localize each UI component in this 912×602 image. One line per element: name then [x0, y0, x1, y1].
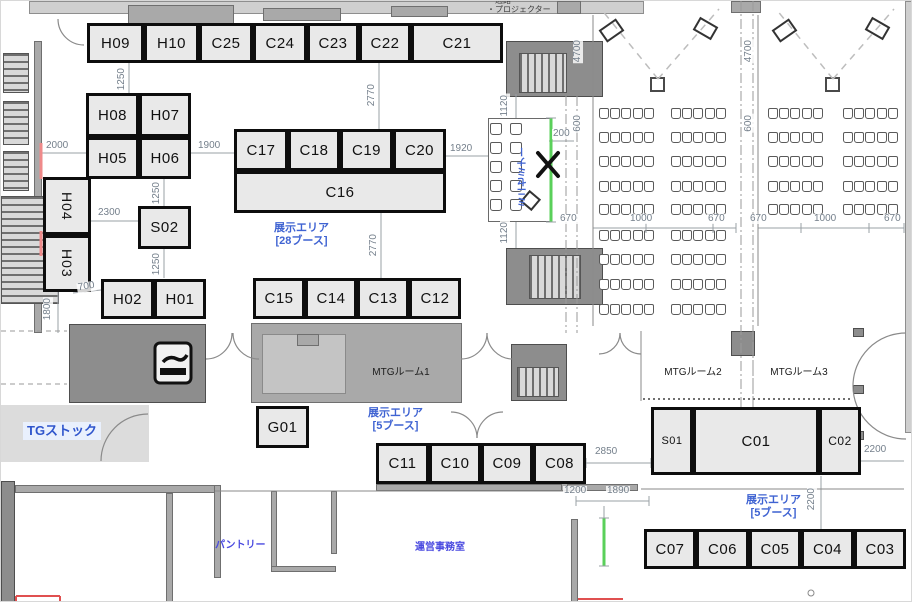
chair-icon	[716, 254, 726, 265]
chair-icon	[716, 304, 726, 315]
area-label: 展示エリア[28ブース]	[259, 222, 344, 248]
chair-icon	[888, 108, 898, 119]
chair-icon	[888, 156, 898, 167]
wall-segment	[905, 1, 912, 433]
chair-icon	[682, 132, 692, 143]
chair-icon	[490, 180, 502, 192]
chair-icon	[599, 279, 609, 290]
dimension-label: 700	[76, 281, 96, 294]
wall-segment	[271, 491, 277, 571]
chair-icon	[705, 156, 715, 167]
chair-icon	[716, 132, 726, 143]
door-arc	[620, 333, 641, 354]
chair-icon	[490, 199, 502, 211]
chair-icon	[682, 230, 692, 241]
booth-h06[interactable]: H06	[139, 137, 191, 179]
chair-icon	[621, 254, 631, 265]
booth-label: H04	[59, 192, 75, 221]
booth-label: H06	[150, 150, 179, 167]
chair-icon	[779, 156, 789, 167]
chair-icon	[610, 181, 620, 192]
chair-icon	[813, 181, 823, 192]
chair-icon	[644, 230, 654, 241]
booth-label: H07	[150, 107, 179, 124]
chair-icon	[802, 108, 812, 119]
room-label: MTGルーム1	[356, 363, 446, 378]
chair-icon	[790, 132, 800, 143]
chair-icon	[802, 132, 812, 143]
chair-icon	[813, 108, 823, 119]
room-label: MTGルーム3	[754, 363, 844, 378]
chair-icon	[779, 181, 789, 192]
booth-c23[interactable]: C23	[307, 23, 359, 63]
booth-c17[interactable]: C17	[234, 129, 288, 171]
dimension-label: 670	[883, 214, 902, 224]
door-arc	[206, 333, 232, 359]
wall-segment	[263, 8, 341, 21]
chair-icon	[705, 304, 715, 315]
chair-icon	[490, 142, 502, 154]
projection-line	[833, 9, 894, 79]
booth-c25[interactable]: C25	[199, 23, 253, 63]
wall-segment	[853, 328, 864, 337]
chair-icon	[877, 132, 887, 143]
chair-icon	[599, 204, 609, 215]
chair-icon	[716, 279, 726, 290]
stairs-icon	[3, 151, 29, 191]
booth-label: C18	[299, 142, 328, 159]
wall-segment	[271, 566, 336, 572]
booth-c11[interactable]: C11	[376, 443, 429, 484]
chair-icon	[693, 132, 703, 143]
area-label: ミニセミナー	[518, 147, 530, 207]
door-arc	[853, 333, 906, 386]
chair-icon	[705, 254, 715, 265]
smoking-area-icon	[153, 341, 193, 390]
booth-label: C04	[813, 541, 842, 558]
booth-c14[interactable]: C14	[305, 278, 357, 319]
chair-icon	[877, 108, 887, 119]
chair-icon	[671, 230, 681, 241]
chair-icon	[633, 230, 643, 241]
chair-icon	[633, 254, 643, 265]
dimension-label: 1120	[500, 221, 510, 245]
chair-icon	[610, 156, 620, 167]
chair-icon	[682, 156, 692, 167]
booth-c06[interactable]: C06	[696, 529, 749, 569]
booth-label: H01	[165, 291, 194, 308]
chair-icon	[671, 254, 681, 265]
booth-c18[interactable]: C18	[288, 129, 340, 171]
booth-c01[interactable]: C01	[693, 407, 819, 475]
dimension-label: 2770	[369, 233, 379, 257]
area-label-text: 展示エリア	[353, 407, 438, 420]
projection-line	[601, 9, 658, 79]
chair-icon	[768, 132, 778, 143]
chair-icon	[779, 108, 789, 119]
dimension-label: 600	[573, 114, 583, 133]
chair-icon	[599, 304, 609, 315]
chair-icon	[644, 108, 654, 119]
dimension-label: 1250	[117, 67, 127, 91]
booth-label: C01	[741, 433, 770, 450]
chair-icon	[490, 161, 502, 173]
chair-icon	[644, 132, 654, 143]
booth-c07[interactable]: C07	[644, 529, 696, 569]
chair-icon	[682, 181, 692, 192]
door-arc	[599, 333, 620, 354]
booth-label: C07	[655, 541, 684, 558]
booth-label: S01	[661, 435, 682, 447]
projection-line	[658, 9, 719, 79]
chair-icon	[843, 108, 853, 119]
chair-icon	[802, 156, 812, 167]
area-label: 運営事務室	[415, 542, 465, 554]
projector-icon	[650, 77, 665, 92]
dimension-label: 1890	[606, 486, 630, 496]
projector-icon	[825, 77, 840, 92]
dimension-label: 4700	[744, 39, 754, 63]
booth-label: H08	[98, 107, 127, 124]
chair-icon	[682, 108, 692, 119]
area-label: 展示エリア[5ブース]	[731, 494, 816, 520]
booth-h07[interactable]: H07	[139, 93, 191, 137]
dimension-label: 600	[744, 114, 754, 133]
area-label-text: TGストック	[27, 423, 97, 439]
chair-icon	[599, 181, 609, 192]
booth-label: C23	[318, 35, 347, 52]
wall-segment	[166, 493, 173, 602]
chair-icon	[682, 279, 692, 290]
chair-icon	[843, 132, 853, 143]
booth-label: C05	[760, 541, 789, 558]
booth-s01[interactable]: S01	[651, 407, 693, 475]
booth-label: C21	[442, 35, 471, 52]
chair-icon	[865, 132, 875, 143]
plan-marker	[808, 590, 814, 596]
chair-icon	[705, 108, 715, 119]
chair-icon	[682, 204, 692, 215]
chair-icon	[716, 156, 726, 167]
chair-icon	[621, 230, 631, 241]
chair-icon	[693, 204, 703, 215]
booth-h08[interactable]: H08	[86, 93, 139, 137]
chair-icon	[633, 156, 643, 167]
dimension-label: 1800	[43, 297, 53, 321]
chair-icon	[621, 304, 631, 315]
wall-segment	[1, 481, 15, 602]
chair-icon	[671, 279, 681, 290]
chair-icon	[633, 304, 643, 315]
dimension-label: 670	[707, 214, 726, 224]
chair-icon	[716, 108, 726, 119]
chair-icon	[599, 230, 609, 241]
door-arc	[451, 412, 477, 438]
chair-icon	[693, 304, 703, 315]
booth-c20[interactable]: C20	[393, 129, 446, 171]
area-label-subtext: [28ブース]	[259, 235, 344, 248]
dimension-label: 1200	[563, 486, 587, 496]
dimension-label: 1000	[813, 214, 837, 224]
stairs-icon	[3, 101, 29, 145]
area-label-text: ミニセミナー	[518, 147, 530, 207]
chair-icon	[671, 204, 681, 215]
booth-label: S02	[150, 219, 178, 236]
booth-label: C09	[492, 455, 521, 472]
dimension-label: 2770	[367, 83, 377, 107]
legend-projector: ・プロジェクター	[487, 5, 551, 14]
chair-icon	[693, 230, 703, 241]
chair-icon	[621, 181, 631, 192]
chair-icon	[610, 254, 620, 265]
booth-label: C03	[865, 541, 894, 558]
screen-icon	[772, 18, 798, 42]
dimension-label: 1000	[629, 214, 653, 224]
chair-icon	[671, 108, 681, 119]
booth-c04[interactable]: C04	[801, 529, 854, 569]
booth-c13[interactable]: C13	[357, 278, 409, 319]
booth-g01[interactable]: G01	[256, 406, 309, 448]
area-label: パントリー	[215, 540, 266, 552]
booth-h01[interactable]: H01	[154, 279, 206, 319]
chair-icon	[843, 181, 853, 192]
chair-icon	[865, 108, 875, 119]
door-arc	[461, 333, 487, 359]
door-arc	[487, 333, 513, 359]
chair-icon	[633, 132, 643, 143]
wall-segment	[15, 485, 215, 493]
chair-icon	[854, 156, 864, 167]
booth-c09[interactable]: C09	[481, 443, 533, 484]
chair-icon	[705, 181, 715, 192]
stairs-icon	[3, 53, 29, 93]
booth-label: C25	[211, 35, 240, 52]
chair-icon	[599, 254, 609, 265]
dimension-label: 1120	[500, 94, 510, 118]
chair-icon	[768, 181, 778, 192]
chair-icon	[790, 108, 800, 119]
chair-icon	[779, 132, 789, 143]
chair-icon	[682, 254, 692, 265]
booth-label: H10	[157, 35, 186, 52]
chair-icon	[716, 230, 726, 241]
area-label-subtext: [5ブース]	[353, 420, 438, 433]
chair-icon	[693, 156, 703, 167]
chair-icon	[671, 181, 681, 192]
booth-label: C24	[265, 35, 294, 52]
dimension-label: 1250	[152, 181, 162, 205]
chair-icon	[705, 230, 715, 241]
dimension-label: 2300	[97, 208, 121, 218]
booth-label: C08	[545, 455, 574, 472]
chair-icon	[682, 304, 692, 315]
chair-icon	[854, 204, 864, 215]
booth-label: C12	[420, 290, 449, 307]
chair-icon	[671, 132, 681, 143]
booth-c03[interactable]: C03	[854, 529, 906, 569]
chair-icon	[621, 108, 631, 119]
area-label-text: パントリー	[215, 540, 266, 552]
booth-label: C16	[325, 184, 354, 201]
chair-icon	[877, 156, 887, 167]
chair-icon	[490, 123, 502, 135]
stairs-icon	[529, 255, 581, 299]
chair-icon	[621, 156, 631, 167]
wall-segment	[331, 491, 337, 554]
booth-c05[interactable]: C05	[749, 529, 801, 569]
chair-icon	[813, 156, 823, 167]
chair-icon	[599, 108, 609, 119]
screen-icon	[599, 18, 625, 42]
chair-icon	[877, 181, 887, 192]
chair-icon	[705, 132, 715, 143]
booth-label: C06	[708, 541, 737, 558]
dimension-label: 2850	[594, 447, 618, 457]
wall-segment	[853, 385, 864, 394]
booth-label: C13	[368, 290, 397, 307]
chair-icon	[610, 204, 620, 215]
booth-label: C17	[246, 142, 275, 159]
chair-icon	[768, 156, 778, 167]
chair-icon	[633, 279, 643, 290]
stairs-icon	[517, 367, 559, 397]
area-label: TGストック	[23, 422, 101, 440]
booth-c15[interactable]: C15	[253, 278, 305, 319]
chair-icon	[633, 108, 643, 119]
floor-plan: ・通路 ・プロジェクター H09H10C25C24C23C22C21H08H07…	[0, 0, 912, 602]
booth-label: C15	[264, 290, 293, 307]
area-label-text: 運営事務室	[415, 542, 465, 554]
dimension-label: 1920	[449, 144, 473, 154]
room-label: MTGルーム2	[648, 363, 738, 378]
dimension-label: 670	[559, 214, 578, 224]
dimension-label: 200	[552, 129, 571, 139]
booth-c19[interactable]: C19	[340, 129, 393, 171]
chair-icon	[644, 304, 654, 315]
dimension-label: 1250	[152, 252, 162, 276]
booth-label: C02	[828, 434, 852, 448]
booth-c22[interactable]: C22	[359, 23, 411, 63]
dimension-label: 670	[749, 214, 768, 224]
booth-c10[interactable]: C10	[429, 443, 481, 484]
booth-c21[interactable]: C21	[411, 23, 503, 63]
chair-icon	[621, 132, 631, 143]
dimension-label: 2000	[45, 141, 69, 151]
dimension-label: 4700	[573, 39, 583, 63]
chair-icon	[854, 108, 864, 119]
chair-icon	[621, 279, 631, 290]
booth-c16[interactable]: C16	[234, 171, 446, 213]
chair-icon	[843, 156, 853, 167]
chair-icon	[610, 108, 620, 119]
booth-h10[interactable]: H10	[144, 23, 199, 63]
chair-icon	[716, 181, 726, 192]
stairs-icon	[519, 53, 567, 93]
chair-icon	[865, 204, 875, 215]
area-label-text: 展示エリア	[731, 494, 816, 507]
chair-icon	[779, 204, 789, 215]
chair-icon	[790, 156, 800, 167]
booth-h05[interactable]: H05	[86, 137, 139, 179]
area-label-subtext: [5ブース]	[731, 507, 816, 520]
chair-icon	[865, 181, 875, 192]
booth-label: H05	[98, 150, 127, 167]
chair-icon	[854, 181, 864, 192]
booth-c24[interactable]: C24	[253, 23, 307, 63]
chair-icon	[790, 181, 800, 192]
screen-icon	[865, 17, 891, 40]
chair-icon	[610, 230, 620, 241]
chair-icon	[610, 132, 620, 143]
booth-label: C14	[316, 290, 345, 307]
booth-c02[interactable]: C02	[819, 407, 861, 475]
area-label: 展示エリア[5ブース]	[353, 407, 438, 433]
booth-c08[interactable]: C08	[533, 443, 586, 484]
wall-segment	[571, 519, 578, 602]
screen-icon	[693, 17, 719, 40]
booth-h09[interactable]: H09	[87, 23, 144, 63]
chair-icon	[888, 181, 898, 192]
wall-segment	[731, 331, 755, 356]
chair-icon	[854, 132, 864, 143]
booth-label: G01	[268, 419, 298, 436]
projection-line	[776, 9, 833, 79]
chair-icon	[693, 181, 703, 192]
wall-segment	[214, 485, 221, 578]
door-arc	[58, 19, 84, 45]
chair-icon	[843, 204, 853, 215]
chair-icon	[644, 181, 654, 192]
wall-segment	[731, 1, 761, 13]
chair-icon	[671, 156, 681, 167]
wall-segment	[557, 1, 581, 14]
chair-icon	[610, 279, 620, 290]
wall-segment	[391, 6, 448, 17]
booth-s02[interactable]: S02	[138, 206, 191, 249]
booth-label: C20	[405, 142, 434, 159]
chair-icon	[802, 181, 812, 192]
chair-icon	[768, 204, 778, 215]
booth-label: C11	[389, 455, 417, 472]
chair-icon	[705, 279, 715, 290]
chair-icon	[644, 156, 654, 167]
booth-c12[interactable]: C12	[409, 278, 461, 319]
booth-label: C22	[370, 35, 399, 52]
chair-icon	[802, 204, 812, 215]
booth-h04[interactable]: H04	[43, 177, 91, 235]
wall-segment	[376, 484, 638, 491]
chair-icon	[599, 156, 609, 167]
chair-icon	[671, 304, 681, 315]
chair-icon	[813, 132, 823, 143]
chair-icon	[599, 132, 609, 143]
chair-icon	[610, 304, 620, 315]
door-arc	[477, 412, 503, 438]
booth-h02[interactable]: H02	[101, 279, 154, 319]
dimension-label: 1900	[197, 141, 221, 151]
booth-label: C10	[440, 455, 469, 472]
booth-label: H02	[113, 291, 142, 308]
dimension-label: 2200	[863, 445, 887, 455]
wall-segment	[297, 334, 319, 346]
chair-icon	[768, 108, 778, 119]
chair-icon	[865, 156, 875, 167]
chair-icon	[693, 108, 703, 119]
booth-label: H09	[101, 35, 130, 52]
booth-label: C19	[352, 142, 381, 159]
chair-icon	[693, 279, 703, 290]
booth-label: H03	[59, 249, 75, 278]
